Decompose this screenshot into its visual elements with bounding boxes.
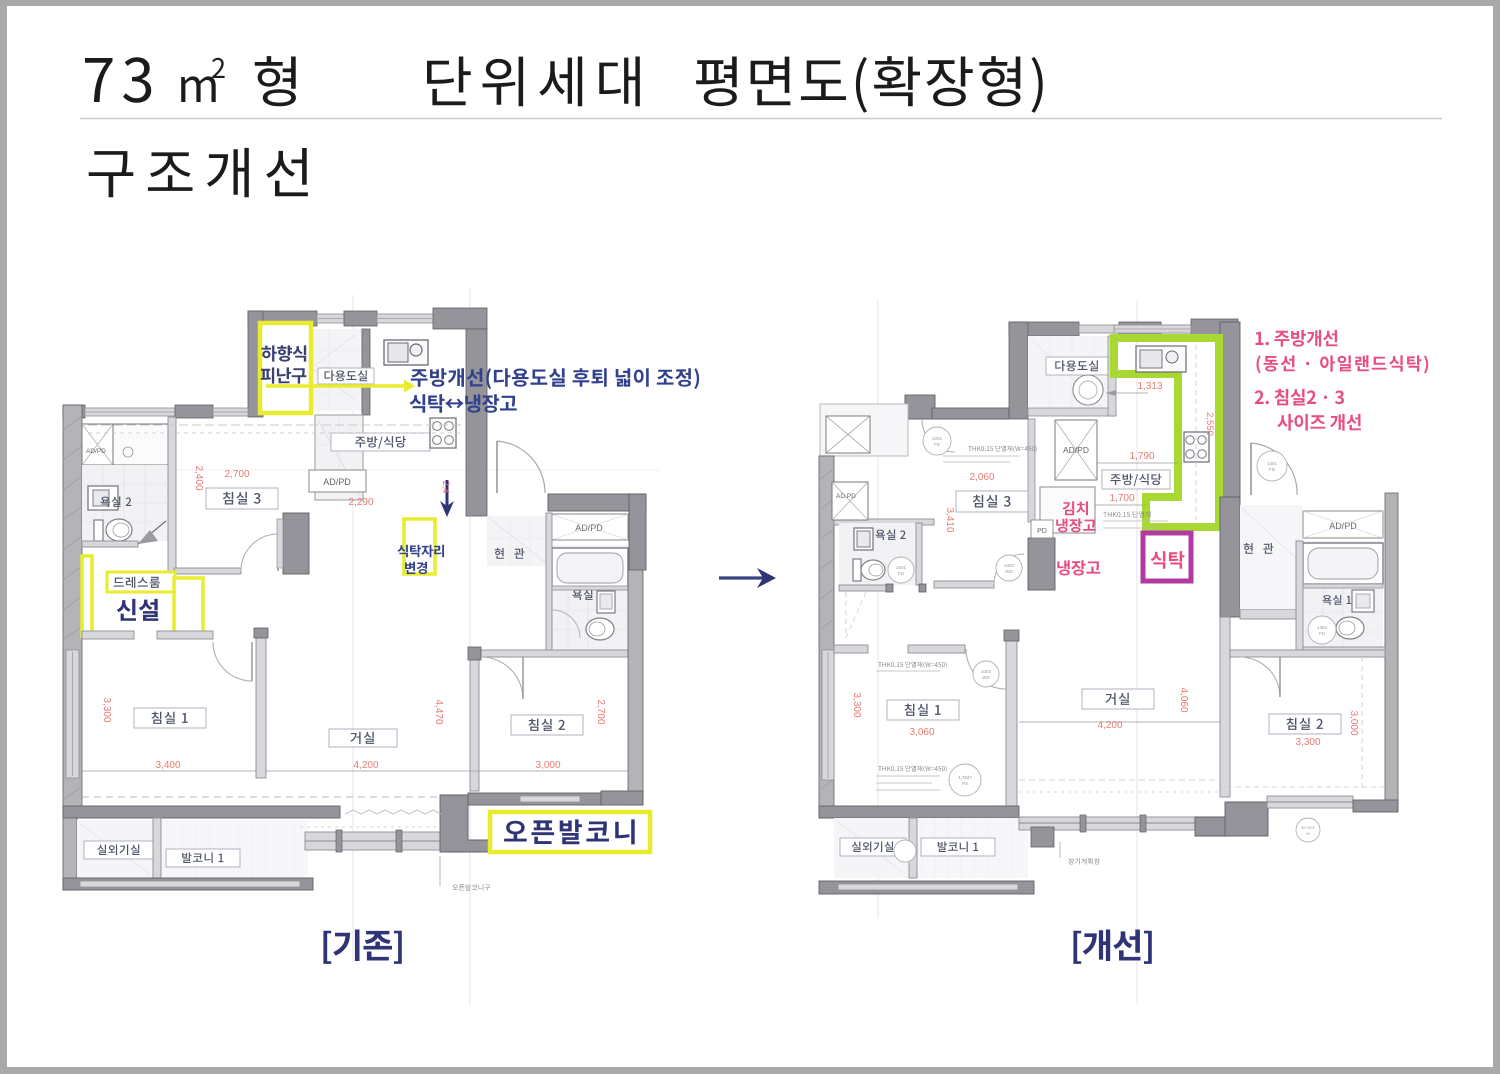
svg-text:3,060: 3,060 — [909, 727, 934, 738]
svg-text:WD: WD — [1005, 569, 1013, 574]
svg-text:FD: FD — [934, 442, 941, 447]
svg-text:WD: WD — [982, 675, 990, 680]
svg-text:3,410: 3,410 — [944, 507, 955, 532]
svg-text:1,313: 1,313 — [1137, 381, 1162, 392]
svg-text:1301: 1301 — [1267, 461, 1278, 466]
svg-text:3,000: 3,000 — [535, 760, 560, 771]
svg-text:2,700: 2,700 — [595, 699, 606, 724]
svg-text:PS: PS — [962, 781, 968, 786]
svg-text:W: W — [1306, 831, 1310, 836]
svg-text:3,300: 3,300 — [101, 697, 112, 722]
svg-text:3,300: 3,300 — [1295, 737, 1320, 748]
svg-text:3,400: 3,400 — [155, 760, 180, 771]
svg-text:4,7837: 4,7837 — [958, 775, 972, 780]
svg-text:FD: FD — [1319, 631, 1326, 636]
svg-text:AD/PD: AD/PD — [575, 523, 603, 533]
svg-text:2,290: 2,290 — [348, 497, 373, 508]
svg-text:2,400: 2,400 — [193, 465, 204, 490]
svg-text:1304: 1304 — [1317, 625, 1328, 630]
svg-text:1,700: 1,700 — [1109, 493, 1134, 504]
svg-text:3,300: 3,300 — [851, 692, 862, 717]
svg-text:1,790: 1,790 — [1129, 451, 1154, 462]
svg-text:AD/PD: AD/PD — [1063, 445, 1089, 455]
svg-text:4,200: 4,200 — [353, 760, 378, 771]
svg-text:2,4: 2,4 — [441, 481, 451, 494]
svg-text:W,7837: W,7837 — [1301, 825, 1315, 830]
svg-text:AD.PD: AD.PD — [836, 493, 856, 500]
svg-text:2,550: 2,550 — [1204, 412, 1215, 436]
svg-text:AD/PD: AD/PD — [86, 448, 106, 455]
svg-text:1003: 1003 — [981, 669, 992, 674]
svg-text:1002: 1002 — [1004, 563, 1015, 568]
svg-text:4,060: 4,060 — [1178, 687, 1189, 712]
svg-text:PD: PD — [1037, 528, 1047, 535]
svg-text:AD/PD: AD/PD — [1329, 521, 1357, 531]
svg-text:FD: FD — [1269, 467, 1276, 472]
svg-text:3,000: 3,000 — [1348, 710, 1359, 735]
svg-text:4,470: 4,470 — [433, 699, 444, 724]
svg-text:1001: 1001 — [896, 565, 907, 570]
svg-text:2,060: 2,060 — [969, 472, 994, 483]
svg-text:AD/PD: AD/PD — [323, 477, 351, 487]
svg-text:2,700: 2,700 — [224, 469, 249, 480]
svg-text:1001: 1001 — [932, 436, 943, 441]
svg-text:FD: FD — [898, 571, 905, 576]
